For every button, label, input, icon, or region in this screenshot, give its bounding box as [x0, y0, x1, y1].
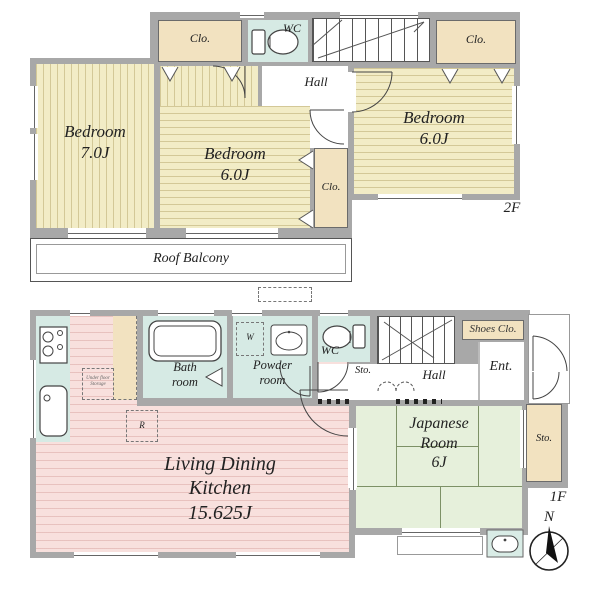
kitchen-cabinet: [113, 316, 137, 400]
window-bedroom6c-bottom: [186, 228, 278, 238]
engawa-porch: [397, 536, 483, 555]
window-ldk-bottom-1: [74, 552, 158, 558]
wall-seg: [137, 398, 317, 406]
floor2-label: 2F: [494, 199, 530, 217]
floor-plan: Clo. WC Clo. Bedroom 7.0J Hall Bedroom 6…: [0, 0, 600, 591]
closet-top-right-label: Clo.: [436, 32, 516, 47]
bedroom7-label: Bedroom 7.0J: [36, 122, 154, 163]
wc-2f-label: WC: [276, 21, 308, 36]
window-2f-top-2: [240, 12, 264, 18]
doorway-2f-bedroom-right: [348, 72, 356, 112]
wc-1f-label: WC: [316, 343, 344, 358]
window-ldk-left: [30, 360, 36, 438]
entrance-label: Ent.: [480, 358, 522, 375]
washer-label: W: [236, 332, 264, 343]
storage-right-label: Sto.: [526, 433, 562, 446]
bedroom-6j-center-entry: [160, 66, 258, 106]
tatami-line: [356, 486, 522, 487]
window-japanese-bottom: [402, 528, 480, 535]
closet-center-label: Clo.: [314, 181, 348, 194]
window-1f-top-1: [70, 310, 90, 316]
entrance-porch: [528, 314, 570, 404]
window-ldk-bottom-2: [236, 552, 320, 558]
window-bedroom7-bottom: [68, 228, 146, 238]
staircase-1f: [377, 316, 455, 364]
window-2f-top-1: [340, 12, 418, 18]
window-bedroom6r-bottom: [378, 194, 462, 201]
compass-icon: [530, 526, 568, 570]
window-1f-top-2: [158, 310, 214, 316]
sliding-rail-1: [318, 399, 352, 404]
sliding-rail-2: [396, 399, 442, 404]
window-1f-top-3: [232, 310, 262, 316]
floor1-label: 1F: [540, 488, 576, 506]
closet-top-left-label: Clo.: [158, 31, 242, 46]
underfloor-storage-label: Under floor Storage: [82, 376, 114, 388]
hall-1f-label: Hall: [412, 367, 456, 383]
bath-label: Bath room: [143, 360, 227, 391]
hall-2f-label: Hall: [292, 74, 340, 90]
window-1f-top-4: [320, 310, 348, 316]
compass-north-label: N: [535, 508, 563, 526]
tatami-line: [440, 486, 441, 528]
japanese-room-label: Japanese Room 6J: [356, 414, 522, 473]
storage-hall-label: Sto.: [348, 365, 378, 378]
bedroom6-center-label: Bedroom 6.0J: [160, 144, 310, 185]
staircase-2f: [312, 18, 430, 62]
floor-separator-marker: [258, 287, 312, 302]
bedroom6-right-label: Bedroom 6.0J: [354, 108, 514, 149]
kitchen-counter: [36, 316, 70, 442]
ldk-label: Living Dining Kitchen 15.625J: [60, 452, 380, 525]
shoes-closet-label: Shoes Clo.: [462, 323, 524, 336]
refrigerator-label: R: [126, 420, 158, 431]
roof-balcony-label: Roof Balcony: [30, 250, 352, 267]
wall-seg: [312, 316, 318, 400]
powder-label: Powder room: [233, 358, 312, 389]
